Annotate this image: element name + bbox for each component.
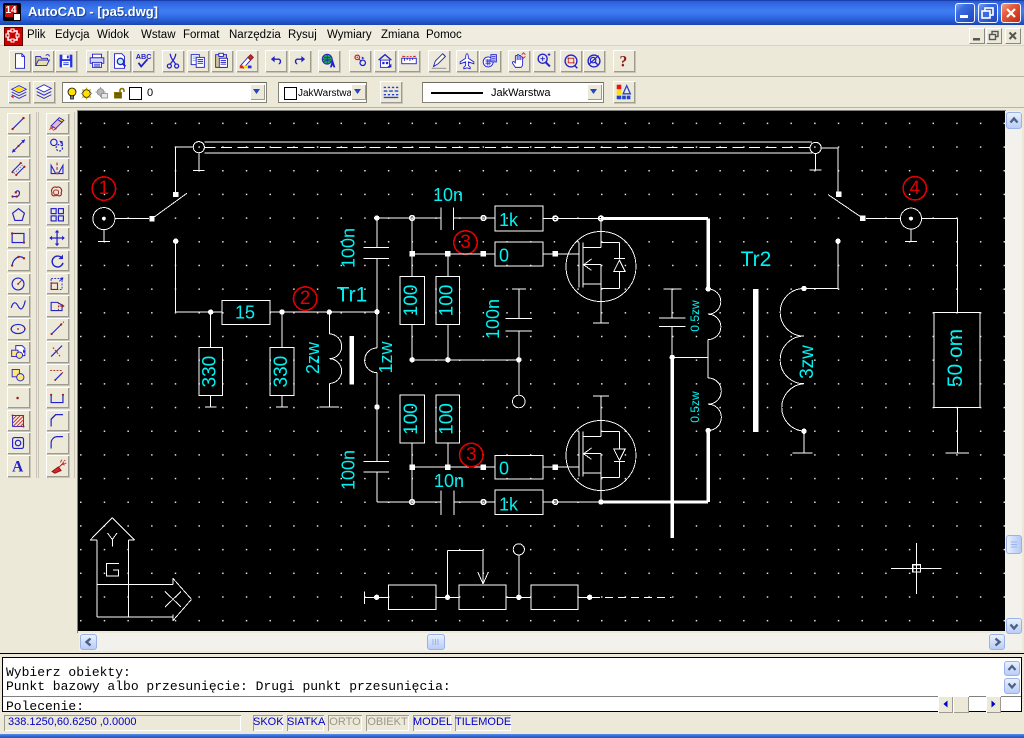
svg-text:3zw: 3zw bbox=[797, 345, 818, 379]
svg-text:1k: 1k bbox=[499, 495, 519, 515]
svg-text:1zw: 1zw bbox=[376, 340, 396, 373]
svg-text:?: ? bbox=[619, 53, 627, 70]
svg-text:100n: 100n bbox=[339, 450, 359, 490]
svg-text:2: 2 bbox=[300, 288, 311, 309]
svg-text:100n: 100n bbox=[339, 228, 359, 268]
svg-text:ABC: ABC bbox=[136, 52, 152, 61]
svg-text:100: 100 bbox=[401, 285, 422, 317]
svg-text:0.5zw: 0.5zw bbox=[688, 391, 702, 423]
svg-text:330: 330 bbox=[200, 356, 221, 388]
svg-text:50 om: 50 om bbox=[944, 329, 967, 387]
svg-text:100: 100 bbox=[437, 403, 458, 435]
svg-text:100: 100 bbox=[437, 285, 458, 317]
svg-text:A: A bbox=[12, 459, 24, 476]
svg-text:10n: 10n bbox=[434, 471, 464, 491]
svg-text:Tr2: Tr2 bbox=[741, 248, 772, 271]
svg-text:100: 100 bbox=[401, 403, 422, 435]
svg-text:100n: 100n bbox=[483, 299, 503, 339]
svg-text:4: 4 bbox=[910, 178, 921, 199]
svg-text:330: 330 bbox=[271, 356, 292, 388]
svg-text:0: 0 bbox=[499, 459, 509, 479]
svg-text:15: 15 bbox=[235, 303, 255, 323]
svg-text:Tr1: Tr1 bbox=[337, 284, 368, 307]
svg-text:0.5zw: 0.5zw bbox=[688, 300, 702, 332]
svg-text:0: 0 bbox=[499, 246, 509, 266]
svg-text:2zw: 2zw bbox=[303, 341, 323, 374]
svg-text:1: 1 bbox=[99, 178, 110, 199]
svg-text:1k: 1k bbox=[499, 210, 519, 230]
svg-text:10n: 10n bbox=[433, 185, 463, 205]
svg-text:3: 3 bbox=[466, 445, 477, 466]
svg-text:3: 3 bbox=[460, 232, 471, 253]
